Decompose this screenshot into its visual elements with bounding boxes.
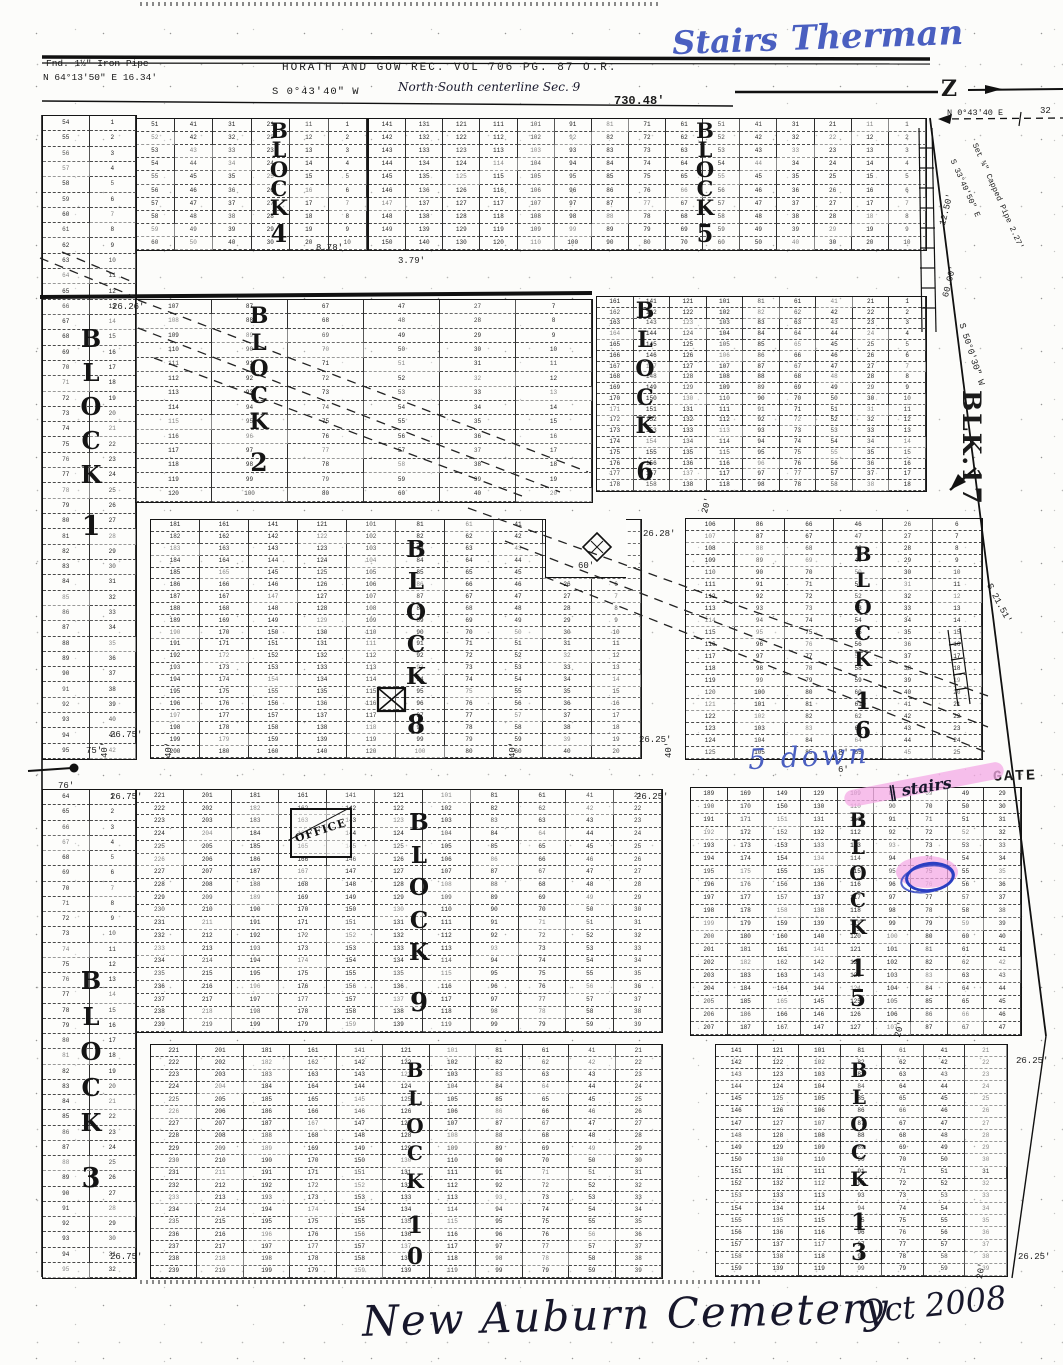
plot-cell: 54 <box>566 956 614 969</box>
plot-cell: 22 <box>853 308 890 319</box>
plot-cell: 59 <box>494 734 543 746</box>
plot-cell: 18 <box>290 211 329 224</box>
plot-cell: 162 <box>597 308 634 319</box>
plot-cell: 181 <box>728 944 765 957</box>
plot-cell: 162 <box>290 1057 336 1069</box>
plot-cell: 79 <box>785 675 834 687</box>
s2151-distance: S 21.51' <box>984 582 1013 625</box>
plot-cell: 112 <box>799 1179 841 1191</box>
plot-cell: 44 <box>924 1081 966 1093</box>
plot-cell: 47 <box>816 362 853 373</box>
plot-cell: 42 <box>740 132 777 145</box>
plot-cell: 52 <box>566 930 614 943</box>
plot-cell: 187 <box>244 1119 290 1131</box>
plot-cell: 238 <box>151 1253 197 1265</box>
plot-cell: 184 <box>244 1082 290 1094</box>
plot-cell: 201 <box>197 1045 243 1057</box>
plot-cell: 192 <box>232 930 280 943</box>
plot-cell: 70 <box>523 1155 569 1167</box>
plot-cell: 115 <box>707 448 744 459</box>
plot-cell: 33 <box>616 1192 662 1204</box>
plot-cell: 33 <box>984 840 1021 853</box>
plot-cell: 197 <box>691 892 728 905</box>
plot-cell: 84 <box>911 983 948 996</box>
plot-cell: 131 <box>758 1167 800 1179</box>
plot-cell: 184 <box>151 556 200 568</box>
plot-cell: 102 <box>707 308 744 319</box>
block-4-grid: 5141312111152423222122534333231335444342… <box>135 118 368 251</box>
toner-streak-top <box>140 2 660 6</box>
plot-cell: 105 <box>423 841 471 854</box>
plot-cell: 128 <box>670 372 707 383</box>
plot-cell: 43 <box>816 319 853 330</box>
plot-cell: 127 <box>670 362 707 373</box>
plot-cell: 104 <box>707 329 744 340</box>
plot-cell: 154 <box>337 1204 383 1216</box>
plot-cell: 54 <box>924 1203 966 1215</box>
plot-cell: 131 <box>801 814 838 827</box>
plot-cell: 91 <box>43 1202 90 1217</box>
plot-cell: 194 <box>232 956 280 969</box>
plot-cell: 79 <box>288 473 364 487</box>
plot-cell: 82 <box>743 308 780 319</box>
plot-cell: 85 <box>471 841 519 854</box>
plot-cell: 31 <box>440 358 516 372</box>
plot-cell: 132 <box>670 416 707 427</box>
block-8-label: BLOCK8 <box>405 539 427 738</box>
plot-cell: 64 <box>523 1082 569 1094</box>
plot-cell: 49 <box>924 1142 966 1154</box>
plot-cell: 143 <box>249 544 298 556</box>
plot-cell: 150 <box>764 801 801 814</box>
plot-cell: 188 <box>244 1131 290 1143</box>
plot-cell: 10 <box>90 254 137 269</box>
plot-cell: 97 <box>743 469 780 480</box>
plot-cell: 116 <box>423 981 471 994</box>
plot-cell: 8 <box>889 372 926 383</box>
plot-cell: 7 <box>889 362 926 373</box>
plot-cell: 80 <box>288 488 364 502</box>
plot-cell: 113 <box>480 145 517 158</box>
plot-cell: 227 <box>151 1119 197 1131</box>
plot-cell: 51 <box>566 917 614 930</box>
plot-cell: 95 <box>476 1217 522 1229</box>
plot-cell: 127 <box>443 198 480 211</box>
plot-cell: 104 <box>874 983 911 996</box>
plot-cell: 142 <box>249 532 298 544</box>
plot-cell: 30 <box>614 905 662 918</box>
plot-cell: 28 <box>616 1131 662 1143</box>
plot-cell: 82 <box>471 803 519 816</box>
plot-cell: 110 <box>518 237 555 250</box>
plot-cell: 40 <box>883 687 932 699</box>
plot-cell: 59 <box>566 1019 614 1032</box>
plot-cell: 50 <box>566 905 614 918</box>
plot-cell: 28 <box>853 372 890 383</box>
plot-cell: 99 <box>735 675 784 687</box>
plot-cell: 158 <box>337 1253 383 1265</box>
plot-cell: 15 <box>933 627 982 639</box>
plot-cell: 39 <box>90 698 137 713</box>
plot-cell: 151 <box>764 814 801 827</box>
plot-cell: 147 <box>337 1119 383 1131</box>
plot-cell: 145 <box>716 1094 758 1106</box>
plot-cell: 26 <box>853 351 890 362</box>
plot-cell: 74 <box>445 675 494 687</box>
plot-cell: 58 <box>816 480 853 491</box>
plot-cell: 84 <box>43 575 90 590</box>
plot-cell: 116 <box>136 430 212 444</box>
plot-cell: 92 <box>43 698 90 713</box>
plot-cell: 17 <box>290 198 329 211</box>
plot-cell: 121 <box>298 520 347 532</box>
plot-cell: 37 <box>616 1241 662 1253</box>
plot-cell: 46 <box>175 185 214 198</box>
plot-cell: 170 <box>279 905 327 918</box>
plot-cell: 68 <box>785 543 834 555</box>
plot-cell: 54 <box>569 1204 615 1216</box>
plot-cell: 139 <box>406 224 443 237</box>
plot-cell: 32 <box>440 372 516 386</box>
plot-cell: 138 <box>670 480 707 491</box>
plot-cell: 86 <box>592 185 629 198</box>
plot-cell: 83 <box>476 1070 522 1082</box>
plot-cell: 20 <box>933 687 982 699</box>
plot-cell: 8 <box>592 603 641 615</box>
plot-cell: 124 <box>758 1081 800 1093</box>
plot-cell: 219 <box>184 1019 232 1032</box>
plot-cell: 61 <box>519 790 567 803</box>
plot-cell: 50 <box>740 237 777 250</box>
plot-cell: 78 <box>288 459 364 473</box>
plot-cell: 91 <box>735 579 784 591</box>
plot-cell: 185 <box>244 1094 290 1106</box>
plot-cell: 15 <box>290 171 329 184</box>
plot-cell: 17 <box>516 444 592 458</box>
plot-cell: 68 <box>523 1131 569 1143</box>
plot-cell: 35 <box>90 637 137 652</box>
plot-cell: 172 <box>279 930 327 943</box>
plot-cell: 62 <box>780 308 817 319</box>
plot-cell: 7 <box>329 198 368 211</box>
plot-cell: 41 <box>816 297 853 308</box>
plot-cell: 12 <box>90 284 137 299</box>
plot-cell: 197 <box>244 1241 290 1253</box>
plot-cell: 33 <box>614 943 662 956</box>
plot-cell: 147 <box>249 591 298 603</box>
plot-cell: 57 <box>566 994 614 1007</box>
plot-cell: 117 <box>707 469 744 480</box>
plot-cell: 125 <box>298 568 347 580</box>
block-2-grid: 1078767472771088868482881098969492991109… <box>135 299 593 503</box>
plot-cell: 12 <box>516 372 592 386</box>
plot-cell: 155 <box>327 968 375 981</box>
plot-cell: 96 <box>471 981 519 994</box>
plot-cell: 114 <box>480 158 517 171</box>
plot-cell: 93 <box>471 943 519 956</box>
plot-cell: 14 <box>933 615 982 627</box>
plot-cell: 1 <box>329 119 368 132</box>
plot-cell: 107 <box>707 362 744 373</box>
plot-cell: 189 <box>244 1143 290 1155</box>
plot-cell: 25 <box>616 1094 662 1106</box>
plot-cell: 207 <box>197 1119 243 1131</box>
plot-cell: 33 <box>543 663 592 675</box>
plot-cell: 176 <box>200 698 249 710</box>
plot-cell: 209 <box>197 1143 243 1155</box>
plot-cell: 32 <box>777 132 814 145</box>
plot-cell: 83 <box>911 970 948 983</box>
plot-cell: 42 <box>494 532 543 544</box>
plot-cell: 24 <box>933 735 982 747</box>
plot-cell: 147 <box>801 1022 838 1035</box>
plot-cell: 170 <box>597 394 634 405</box>
plot-cell: 57 <box>816 469 853 480</box>
plot-cell: 89 <box>476 1143 522 1155</box>
plot-cell: 149 <box>327 892 375 905</box>
plot-cell: 46 <box>816 351 853 362</box>
plot-cell: 184 <box>232 828 280 841</box>
plot-cell: 101 <box>430 1045 476 1057</box>
plot-cell: 38 <box>965 1252 1007 1264</box>
plot-cell: 67 <box>785 531 834 543</box>
plot-cell: 45 <box>816 340 853 351</box>
plot-cell: 37 <box>883 651 932 663</box>
plot-cell: 33 <box>883 603 932 615</box>
plot-cell: 238 <box>136 1007 184 1020</box>
plot-cell: 195 <box>151 687 200 699</box>
plot-cell: 128 <box>298 603 347 615</box>
plot-cell: 80 <box>785 687 834 699</box>
plot-cell: 62 <box>882 1057 924 1069</box>
plot-cell: 225 <box>136 841 184 854</box>
plot-cell: 41 <box>740 119 777 132</box>
plot-cell: 108 <box>518 211 555 224</box>
plot-cell: 86 <box>735 519 784 531</box>
plot-cell: 79 <box>445 734 494 746</box>
five-down-note: 5 down <box>747 737 870 776</box>
plot-cell: 75 <box>519 968 567 981</box>
plot-cell: 40 <box>440 488 516 502</box>
monument-dot <box>70 764 79 773</box>
plot-cell: 158 <box>249 722 298 734</box>
plot-cell: 40 <box>213 237 252 250</box>
plot-cell: 28 <box>440 314 516 328</box>
plot-cell: 35 <box>777 171 814 184</box>
plot-cell: 54 <box>136 158 175 171</box>
plot-cell: 167 <box>597 362 634 373</box>
plot-cell: 68 <box>43 851 90 866</box>
plot-cell: 49 <box>364 329 440 343</box>
plot-cell: 41 <box>566 790 614 803</box>
plot-cell: 100 <box>212 488 288 502</box>
plot-cell: 2 <box>90 805 137 820</box>
plot-cell: 115 <box>136 415 212 429</box>
plot-cell: 37 <box>984 892 1021 905</box>
plot-cell: 172 <box>597 416 634 427</box>
plot-cell: 18 <box>516 459 592 473</box>
plot-cell: 124 <box>298 556 347 568</box>
plot-cell: 47 <box>364 300 440 314</box>
plot-cell: 59 <box>136 224 175 237</box>
plot-cell: 142 <box>337 1057 383 1069</box>
plot-cell: 45 <box>566 841 614 854</box>
plot-cell: 122 <box>686 711 735 723</box>
plot-cell: 141 <box>801 944 838 957</box>
plot-cell: 65 <box>780 340 817 351</box>
plot-cell: 52 <box>364 372 440 386</box>
plot-cell: 152 <box>337 1180 383 1192</box>
plot-cell: 138 <box>801 905 838 918</box>
north-arrow-glyph: Z <box>941 76 957 102</box>
block-9-label: BLOCK9 <box>408 812 430 1016</box>
plot-cell: 112 <box>136 372 212 386</box>
plot-cell: 67 <box>780 362 817 373</box>
plot-cell: 119 <box>799 1264 841 1276</box>
plot-cell: 14 <box>852 158 889 171</box>
plot-cell: 133 <box>406 145 443 158</box>
plot-cell: 71 <box>445 639 494 651</box>
plot-cell: 145 <box>249 568 298 580</box>
plot-cell: 24 <box>616 1082 662 1094</box>
plot-cell: 111 <box>423 917 471 930</box>
plot-cell: 111 <box>430 1168 476 1180</box>
plot-cell: 59 <box>43 193 90 208</box>
plot-cell: 212 <box>197 1180 243 1192</box>
plot-cell: 95 <box>471 968 519 981</box>
plot-cell: 88 <box>735 543 784 555</box>
plot-cell: 182 <box>232 803 280 816</box>
plot-cell: 171 <box>279 917 327 930</box>
plot-cell: 163 <box>597 319 634 330</box>
plot-cell: 92 <box>743 416 780 427</box>
plot-cell: 111 <box>347 639 396 651</box>
plot-cell: 125 <box>758 1094 800 1106</box>
plot-cell: 50 <box>948 801 985 814</box>
plot-cell: 181 <box>232 790 280 803</box>
plot-cell: 60 <box>136 237 175 250</box>
plot-cell: 91 <box>874 814 911 827</box>
plot-cell: 123 <box>670 319 707 330</box>
plot-cell: 15 <box>889 448 926 459</box>
plot-cell: 155 <box>716 1215 758 1227</box>
plot-cell: 30 <box>543 627 592 639</box>
plot-cell: 100 <box>396 746 445 758</box>
plot-cell: 176 <box>290 1229 336 1241</box>
plot-cell: 112 <box>707 416 744 427</box>
plot-cell: 1 <box>889 119 926 132</box>
plot-cell: 113 <box>423 943 471 956</box>
plot-cell: 102 <box>430 1057 476 1069</box>
plot-cell: 157 <box>249 710 298 722</box>
plot-cell: 102 <box>347 532 396 544</box>
plot-cell: 122 <box>298 532 347 544</box>
plot-cell: 156 <box>249 698 298 710</box>
plot-cell: 144 <box>337 1082 383 1094</box>
plot-cell: 61 <box>43 223 90 238</box>
plot-cell: 66 <box>519 854 567 867</box>
dimension-label: 20' <box>975 1262 988 1280</box>
plot-cell: 10 <box>889 237 926 250</box>
plot-cell: 180 <box>200 746 249 758</box>
plot-cell: 193 <box>244 1192 290 1204</box>
plot-cell: 28 <box>543 603 592 615</box>
plot-cell: 93 <box>476 1192 522 1204</box>
plot-cell: 203 <box>197 1070 243 1082</box>
plot-cell: 153 <box>716 1191 758 1203</box>
plot-cell: 38 <box>777 211 814 224</box>
plot-cell: 50 <box>494 627 543 639</box>
plot-cell: 27 <box>543 591 592 603</box>
plot-cell: 142 <box>716 1057 758 1069</box>
plot-cell: 116 <box>707 459 744 470</box>
plot-cell: 60 <box>364 488 440 502</box>
plot-cell: 34 <box>984 853 1021 866</box>
plot-cell: 76 <box>629 185 666 198</box>
plot-cell: 71 <box>43 897 90 912</box>
plot-cell: 38 <box>543 722 592 734</box>
plot-cell: 190 <box>244 1155 290 1167</box>
plot-cell: 129 <box>670 383 707 394</box>
plot-cell: 11 <box>852 119 889 132</box>
plot-cell: 126 <box>758 1106 800 1118</box>
plot-cell: 78 <box>629 211 666 224</box>
plot-cell: 185 <box>232 841 280 854</box>
plot-cell: 71 <box>785 579 834 591</box>
plot-cell: 109 <box>430 1143 476 1155</box>
plot-cell: 97 <box>735 651 784 663</box>
plot-cell: 10 <box>516 343 592 357</box>
plot-cell: 191 <box>691 814 728 827</box>
plot-cell: 25 <box>853 340 890 351</box>
plot-cell: 49 <box>566 892 614 905</box>
plot-cell: 239 <box>136 1019 184 1032</box>
plot-cell: 192 <box>691 827 728 840</box>
plot-cell: 151 <box>337 1168 383 1180</box>
plot-cell: 127 <box>298 591 347 603</box>
plot-cell: 164 <box>764 983 801 996</box>
plot-cell: 87 <box>43 621 90 636</box>
plot-cell: 186 <box>728 1009 765 1022</box>
plot-cell: 69 <box>780 383 817 394</box>
plot-cell: 26 <box>616 1106 662 1118</box>
plot-cell: 210 <box>184 905 232 918</box>
plot-cell: 36 <box>965 1227 1007 1239</box>
plot-cell: 64 <box>882 1081 924 1093</box>
plot-cell: 176 <box>597 459 634 470</box>
plot-cell: 149 <box>369 224 406 237</box>
plot-cell: 137 <box>670 469 707 480</box>
plot-cell: 78 <box>785 663 834 675</box>
plot-cell: 80 <box>445 746 494 758</box>
plot-cell: 132 <box>801 827 838 840</box>
plot-cell: 34 <box>616 1204 662 1216</box>
office-box: OFFICE <box>290 808 352 858</box>
plot-cell: 117 <box>686 651 735 663</box>
plot-cell: 41 <box>984 944 1021 957</box>
plot-cell: 228 <box>151 1131 197 1143</box>
plot-cell: 103 <box>430 1070 476 1082</box>
plot-cell: 90 <box>743 394 780 405</box>
plot-cell: 100 <box>874 931 911 944</box>
plot-cell: 61 <box>523 1045 569 1057</box>
plot-cell: 18 <box>933 663 982 675</box>
plot-cell: 59 <box>948 918 985 931</box>
plot-cell: 183 <box>728 970 765 983</box>
plot-cell: 77 <box>629 198 666 211</box>
plot-cell: 87 <box>476 1119 522 1131</box>
plot-cell: 232 <box>151 1180 197 1192</box>
